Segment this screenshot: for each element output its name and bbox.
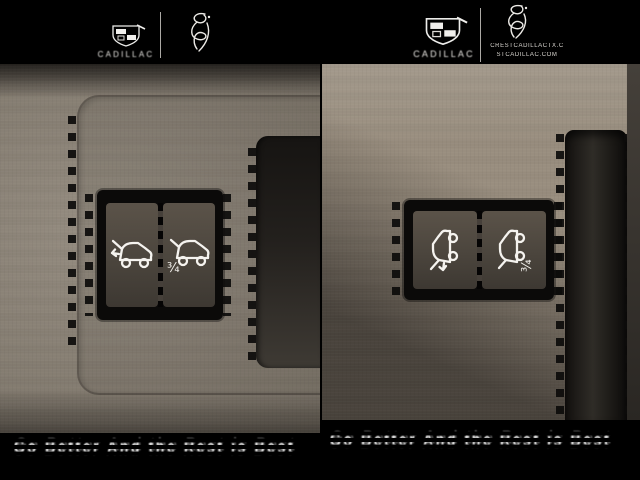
liftgate-button-bezel: ¾ [97, 190, 223, 320]
suv-liftgate-three-quarter-icon: ¾ [495, 227, 533, 273]
rotated-icon-wrap: ¾ [495, 227, 533, 273]
dealer-photo-collage: CADILLAC CADILLAC [0, 0, 640, 480]
watermark-caption-right: Go Better And the Rest is Best [330, 429, 634, 450]
dark-side-trim [256, 136, 320, 368]
left-photo: ¾ [0, 64, 320, 433]
liftgate-button-bezel: ¾ [404, 200, 554, 300]
dealer-monogram-icon-right [499, 2, 535, 42]
serrated-edge [556, 134, 564, 418]
dealer-monogram-icon-left [183, 9, 217, 57]
dealer-url-line-1: CRESTCADILLACTX.C [481, 43, 573, 49]
serrated-edge [68, 116, 76, 350]
liftgate-partial-button: ¾ [482, 211, 546, 289]
liftgate-open-button [106, 203, 158, 307]
suv-liftgate-open-icon [109, 238, 155, 272]
branding-header: CADILLAC CADILLAC [0, 0, 640, 64]
serrated-edge [392, 202, 400, 298]
liftgate-partial-button: ¾ [163, 203, 215, 307]
rotated-icon-wrap [428, 227, 462, 273]
cadillac-crest-icon [417, 15, 469, 48]
liftgate-open-button [413, 211, 477, 289]
suv-liftgate-open-icon [428, 227, 462, 273]
cadillac-crest-icon [106, 23, 146, 49]
dealer-url-line-2: STCADILLAC.COM [481, 52, 573, 58]
bezel-divider [477, 211, 482, 289]
fraction-label: ¾ [167, 261, 180, 274]
fraction-label: ¾ [520, 259, 533, 272]
right-photo: ¾ [322, 64, 640, 420]
dark-edge-trim [627, 64, 640, 420]
cadillac-wordmark-right: CADILLAC [398, 49, 490, 59]
serrated-edge [554, 202, 562, 298]
header-divider-left [160, 12, 161, 58]
bezel-divider [158, 203, 163, 307]
gloss-black-trim-strip [565, 130, 627, 420]
watermark-caption-left: Go Better And the Rest is Best [14, 436, 312, 457]
suv-liftgate-three-quarter-icon: ¾ [166, 236, 212, 274]
cadillac-wordmark-left: CADILLAC [88, 50, 164, 59]
